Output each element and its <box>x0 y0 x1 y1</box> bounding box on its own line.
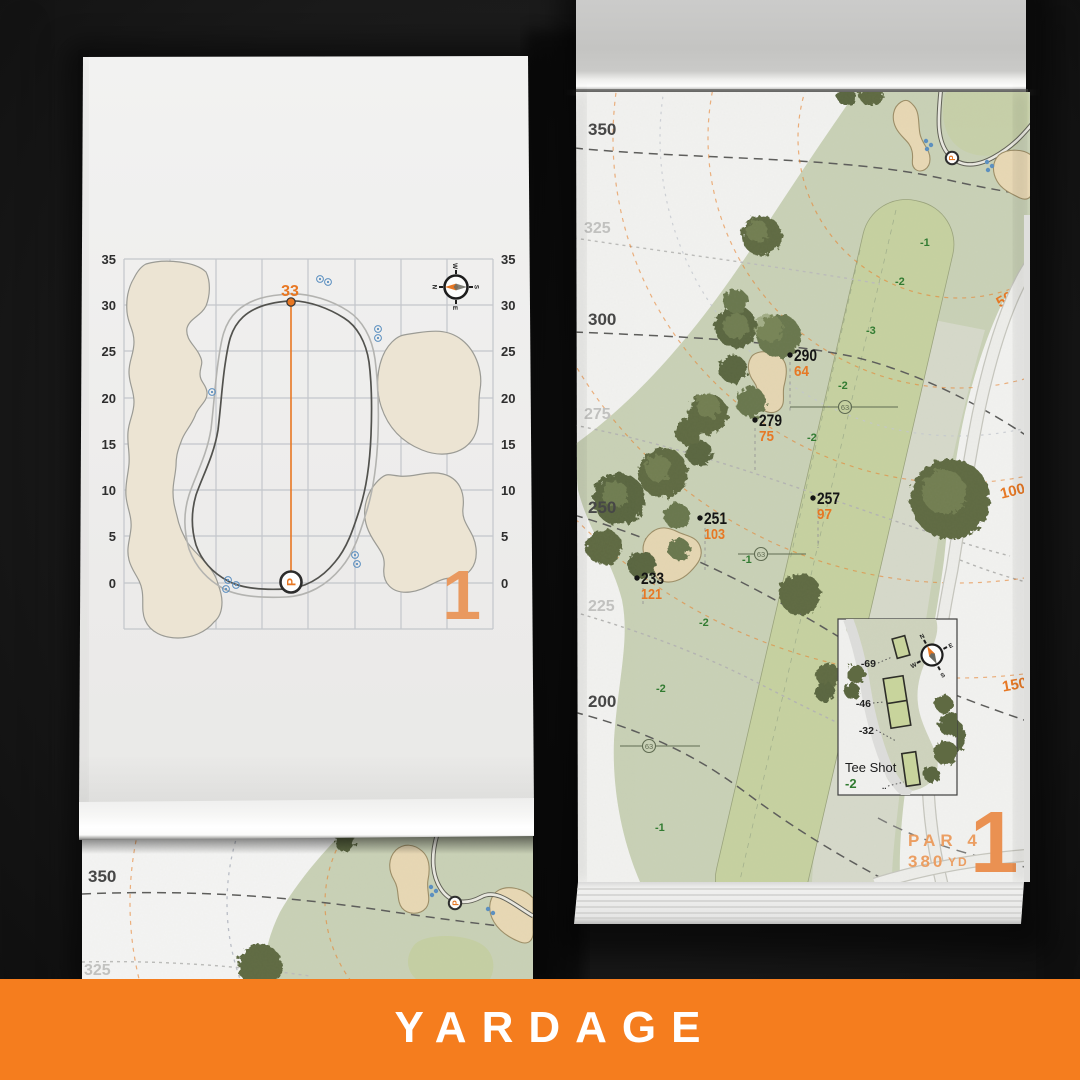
svg-text:25: 25 <box>501 344 515 359</box>
svg-text:S: S <box>473 285 480 289</box>
svg-text:30: 30 <box>501 298 515 313</box>
svg-text:..: .. <box>882 782 886 791</box>
svg-text:5: 5 <box>109 529 116 544</box>
svg-text:-46: -46 <box>856 698 871 710</box>
svg-text:35: 35 <box>102 252 116 267</box>
svg-text:-2: -2 <box>845 776 857 791</box>
svg-text:YARDAGE: YARDAGE <box>395 1003 716 1052</box>
svg-text:-69: -69 <box>861 658 876 670</box>
svg-text:25: 25 <box>102 344 116 359</box>
svg-text:P: P <box>285 578 299 586</box>
svg-text:35: 35 <box>501 252 515 267</box>
svg-text:0: 0 <box>109 576 116 591</box>
svg-text:10: 10 <box>501 483 515 498</box>
svg-text:W: W <box>451 263 458 269</box>
svg-text:Tee Shot: Tee Shot <box>845 760 897 775</box>
svg-text:5: 5 <box>501 529 508 544</box>
svg-text:0: 0 <box>501 576 508 591</box>
svg-text:N: N <box>431 285 438 290</box>
svg-text:1: 1 <box>442 556 481 634</box>
svg-text:YD: YD <box>948 855 969 869</box>
svg-text:10: 10 <box>102 483 116 498</box>
svg-text:380: 380 <box>908 852 945 871</box>
svg-text:20: 20 <box>102 391 116 406</box>
svg-text:15: 15 <box>501 437 515 452</box>
svg-text:30: 30 <box>102 298 116 313</box>
svg-text:1: 1 <box>970 794 1018 891</box>
svg-text:15: 15 <box>102 437 116 452</box>
svg-text:-32: -32 <box>859 725 874 737</box>
svg-text:E: E <box>451 306 458 310</box>
svg-text:20: 20 <box>501 391 515 406</box>
